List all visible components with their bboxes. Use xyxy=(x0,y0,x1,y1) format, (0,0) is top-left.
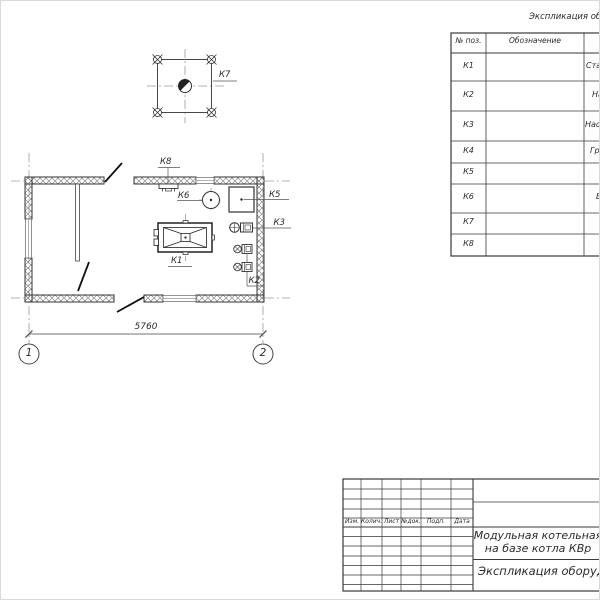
table-row-pos: К3 xyxy=(451,120,486,129)
table-row-pos: К2 xyxy=(451,90,486,99)
dimension-value: 5760 xyxy=(126,322,166,332)
equipment-table-title: Экспликация оборудования xyxy=(529,13,600,23)
tb-project-title-line1: Модульная котельная xyxy=(473,530,600,543)
axis-bubble-2: 2 xyxy=(253,347,274,359)
label-k5: К5 xyxy=(269,191,280,201)
text-overlay: Экспликация оборудования № поз. Обозначе… xyxy=(1,1,600,600)
tb-col-izm: Изм. xyxy=(343,519,361,526)
table-col-designation: Обозначение xyxy=(486,37,584,46)
tb-col-data: Дата xyxy=(451,519,473,526)
table-row-pos: К8 xyxy=(451,239,486,248)
table-col-pos: № поз. xyxy=(451,37,486,46)
table-row-pos: К7 xyxy=(451,217,486,226)
axis-bubble-1: 1 xyxy=(19,347,40,359)
drawing-sheet: Экспликация оборудования № поз. Обозначе… xyxy=(0,0,600,600)
table-row-pos: К5 xyxy=(451,167,486,176)
table-row-name: Насос xyxy=(585,120,600,129)
tb-sheet-name: Экспликация оборудования xyxy=(478,565,600,578)
table-row-pos: К4 xyxy=(451,146,486,155)
table-row-name: Гр xyxy=(590,146,600,155)
label-k2: К2 xyxy=(249,277,260,287)
label-k8: К8 xyxy=(160,158,171,168)
label-k7: К7 xyxy=(219,71,230,81)
table-row-name: Стал xyxy=(586,61,600,70)
tb-col-ndok: №док. xyxy=(401,519,421,526)
tb-col-list: Лист xyxy=(382,519,401,526)
table-row-name: Б xyxy=(596,192,600,201)
label-k1: К1 xyxy=(171,257,182,267)
table-row-pos: К1 xyxy=(451,61,486,70)
tb-project-title-line2: на базе котла КВр xyxy=(473,543,600,556)
label-k6: К6 xyxy=(178,192,189,202)
tb-col-kolich: Колич. xyxy=(361,519,382,526)
label-k3: К3 xyxy=(274,219,285,229)
table-row-pos: К6 xyxy=(451,192,486,201)
table-row-name: На xyxy=(592,90,600,99)
tb-col-podp: Подп. xyxy=(421,519,451,526)
